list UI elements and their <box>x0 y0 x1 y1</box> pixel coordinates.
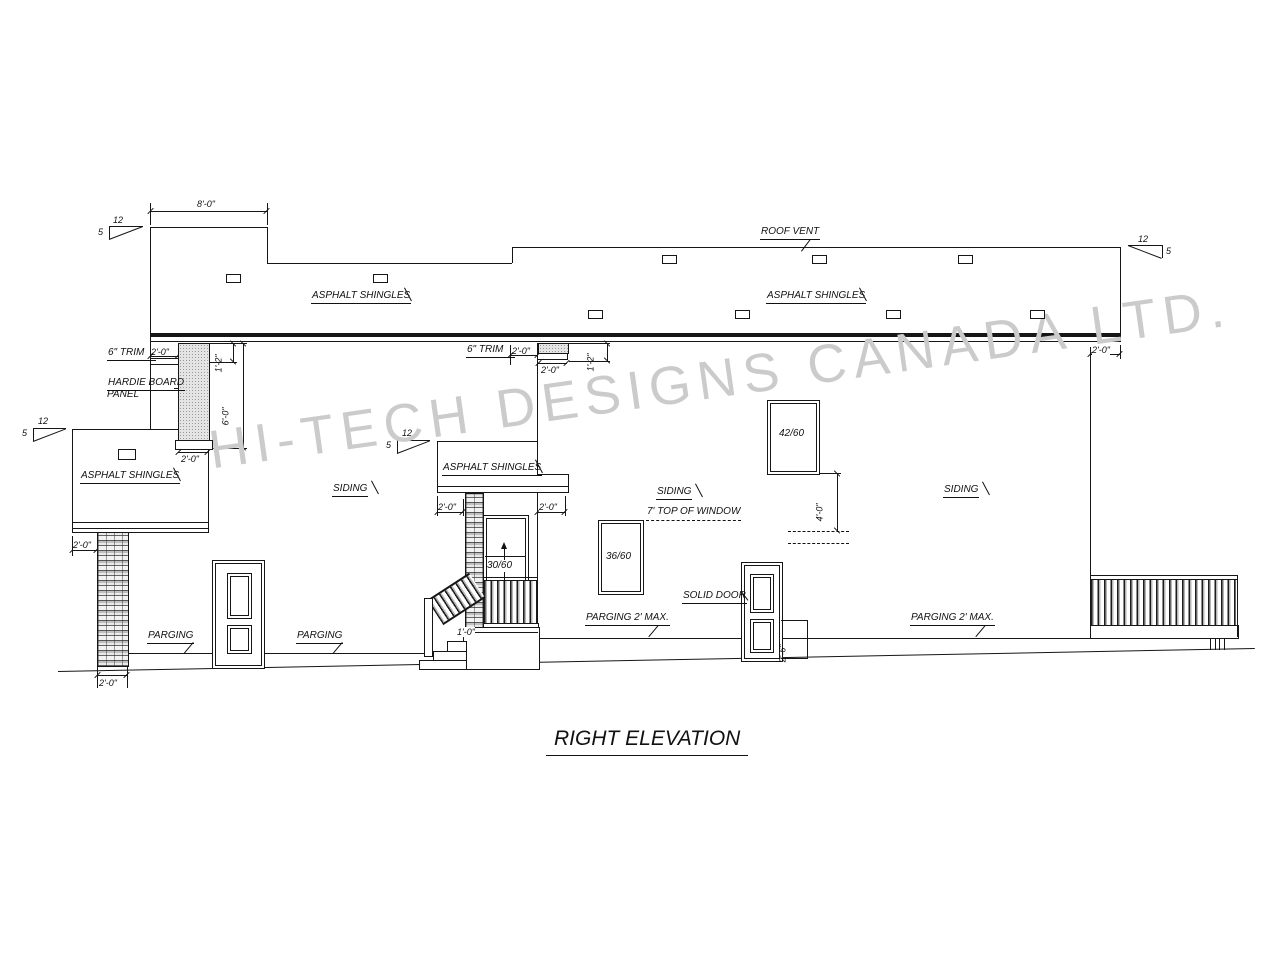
roof-vent <box>118 449 136 460</box>
dim-text: 1'-0" <box>457 627 475 637</box>
dim-line <box>538 363 567 364</box>
window-size-label: 30/60 <box>487 560 512 572</box>
window-size-label: 42/60 <box>779 428 804 440</box>
asphalt-shingles-label: ASPHALT SHINGLES <box>80 470 180 484</box>
newel-post <box>424 598 433 657</box>
dim-line <box>178 452 208 453</box>
dim-ext-line <box>267 203 268 225</box>
pitch-rise: 5 <box>1166 246 1171 256</box>
door-panel-inner <box>230 576 249 616</box>
roof-vent <box>662 255 677 264</box>
step <box>419 660 467 670</box>
dim-text: 2'-0" <box>181 454 199 464</box>
railing-top <box>483 577 537 578</box>
watermark-text: HI-TECH DESIGNS CANADA LTD. <box>205 295 1105 482</box>
dim-line <box>150 211 267 212</box>
dim-text: 2'-0" <box>539 502 557 512</box>
leader-line <box>975 625 985 637</box>
hardie-board-panel <box>178 343 210 442</box>
roof-vent-label: ROOF VENT <box>760 226 820 240</box>
pitch-run: 12 <box>402 428 412 438</box>
roof-line <box>267 227 268 263</box>
wall-line <box>537 493 538 632</box>
siding-label: SIDING <box>943 484 979 498</box>
door-panel <box>750 619 774 653</box>
dim-text: 8'-0" <box>197 199 215 209</box>
pitch-run: 12 <box>1138 234 1148 244</box>
dim-line <box>233 343 234 362</box>
stone-pillar <box>97 532 129 667</box>
dim-text: 2'-0" <box>512 346 530 356</box>
dim-text: 1'-2" <box>214 354 224 372</box>
dim-line <box>837 473 838 531</box>
window-3060 <box>483 515 529 590</box>
porch-fascia <box>437 492 569 493</box>
dim-ext-line <box>463 499 464 516</box>
pitch-marker <box>1162 245 1163 258</box>
pitch-marker <box>33 428 66 441</box>
dim-ext-line <box>150 203 151 225</box>
roof-line <box>512 247 1120 248</box>
dim-text: 2'-0" <box>438 502 456 512</box>
parging-max-label: PARGING 2' MAX. <box>585 612 670 626</box>
dashed-floor-line <box>788 531 849 532</box>
roof-vent <box>886 310 901 319</box>
roof-vent <box>588 310 603 319</box>
dim-text: 6'-0" <box>221 407 231 425</box>
deck-rail-top <box>1090 575 1237 576</box>
asphalt-shingles-label: ASPHALT SHINGLES <box>766 290 866 304</box>
pitch-marker <box>1128 245 1162 246</box>
roof-vent <box>1030 310 1045 319</box>
pitch-marker <box>1128 245 1162 259</box>
window-mid-rail <box>485 556 525 557</box>
pitch-marker <box>109 226 143 240</box>
leader-slash <box>371 481 379 495</box>
siding-label: SIDING <box>332 483 368 497</box>
deck-rim <box>1090 625 1239 639</box>
roof-line <box>267 263 512 264</box>
asphalt-shingles-label: ASPHALT SHINGLES <box>311 290 411 304</box>
roof-vent <box>373 274 388 283</box>
door-panel <box>227 573 252 619</box>
top-of-window-label: 7' TOP OF WINDOW <box>646 506 741 521</box>
stoop-line <box>807 620 808 658</box>
pitch-marker <box>109 226 110 239</box>
parging-line <box>127 653 433 654</box>
porch-roof-line <box>568 474 569 493</box>
roof-vent <box>226 274 241 283</box>
pitch-rise: 5 <box>98 227 103 237</box>
roof-vent <box>958 255 973 264</box>
pitch-run: 12 <box>113 215 123 225</box>
dim-line <box>607 343 608 361</box>
porch-fascia <box>72 528 209 529</box>
parging-max-label: PARGING 2' MAX. <box>910 612 995 626</box>
dim-text: 2'-0" <box>151 347 169 357</box>
dashed-floor-line <box>788 543 849 544</box>
roof-line <box>150 227 267 228</box>
dim-ext-line <box>569 343 610 344</box>
swing-arrow-head <box>501 542 507 549</box>
leader-line <box>648 625 658 637</box>
parging-line <box>538 638 1090 639</box>
door-panel <box>750 574 774 613</box>
pitch-rise: 5 <box>22 428 27 438</box>
dim-text: 2'-6" <box>778 644 788 662</box>
porch-roof-line <box>208 448 209 532</box>
elevation-drawing: HI-TECH DESIGNS CANADA LTD. 8'-0" 12 5 <box>0 0 1280 960</box>
dim-text: 2'-0" <box>1092 345 1110 355</box>
panel-cap <box>175 440 213 450</box>
door-panel-inner <box>230 628 249 651</box>
roof-vent <box>735 310 750 319</box>
window-size-label: 36/60 <box>606 551 631 563</box>
siding-label: SIDING <box>656 486 692 500</box>
trim-block <box>538 343 569 354</box>
hardie-label: PANEL <box>107 389 139 401</box>
dim-line <box>97 675 127 676</box>
pitch-rise: 5 <box>386 440 391 450</box>
door-panel <box>227 625 252 654</box>
leader-slash <box>695 484 703 498</box>
roof-vent <box>812 255 827 264</box>
trim-label: 6" TRIM <box>466 344 515 358</box>
solid-door-label: SOLID DOOR <box>682 590 747 604</box>
pitch-run: 12 <box>38 416 48 426</box>
porch-fascia <box>437 486 569 487</box>
dim-ext-line <box>565 496 566 516</box>
dim-text: 4'-0" <box>815 503 825 521</box>
pitch-marker <box>33 428 34 441</box>
deck-balusters <box>1091 580 1236 625</box>
deck-rail-edge <box>1237 575 1238 637</box>
leader-slash <box>982 482 990 496</box>
dim-text: 2'-0" <box>73 540 91 550</box>
porch-fascia <box>72 522 209 523</box>
door-panel-inner <box>753 622 771 650</box>
porch-roof-line <box>72 429 73 532</box>
porch-fascia <box>72 532 209 533</box>
leader-line <box>801 239 811 252</box>
trim-line <box>538 359 568 360</box>
roof-line <box>512 247 513 263</box>
stoop-line <box>781 620 808 621</box>
railing-balusters <box>484 581 537 623</box>
parging-label: PARGING <box>147 630 194 644</box>
dim-text: 2'-0" <box>99 678 117 688</box>
door-panel-inner <box>753 577 771 610</box>
drawing-title: RIGHT ELEVATION <box>546 727 748 756</box>
asphalt-shingles-label: ASPHALT SHINGLES <box>442 462 542 476</box>
trim-label: 6" TRIM <box>107 347 156 361</box>
dim-text: 2'-0" <box>541 365 559 375</box>
dim-text: 1'-2" <box>586 353 596 371</box>
porch-roof-line <box>72 429 178 430</box>
parging-label: PARGING <box>296 630 343 644</box>
